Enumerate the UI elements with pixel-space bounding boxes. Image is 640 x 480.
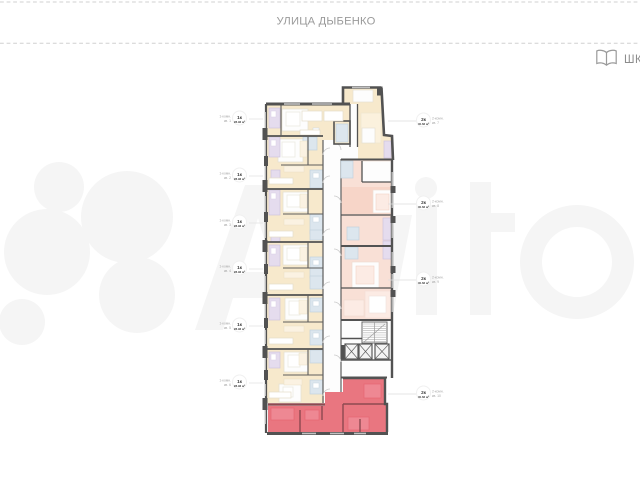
svg-text:28.93 м²: 28.93 м²: [234, 270, 245, 274]
svg-text:2к: 2к: [421, 200, 427, 205]
svg-text:УЛИЦА ДЫБЕНКО: УЛИЦА ДЫБЕНКО: [276, 16, 375, 28]
svg-text:1к: 1к: [237, 379, 243, 384]
svg-text:кв. 2: кв. 2: [224, 176, 231, 180]
svg-text:28.93 м²: 28.93 м²: [234, 384, 245, 388]
svg-text:1к: 1к: [237, 265, 243, 270]
svg-text:кв. 7: кв. 7: [432, 121, 439, 125]
svg-text:1к: 1к: [237, 322, 243, 327]
svg-text:1к: 1к: [237, 115, 243, 120]
svg-text:28.93 м²: 28.93 м²: [234, 327, 245, 331]
svg-text:кв. 8: кв. 8: [432, 204, 439, 208]
svg-text:кв. 9: кв. 9: [432, 280, 439, 284]
svg-text:1к: 1к: [237, 219, 243, 224]
svg-text:28.93 м²: 28.93 м²: [234, 120, 245, 124]
svg-text:40.62 м²: 40.62 м²: [418, 122, 429, 126]
svg-text:40.62 м²: 40.62 м²: [418, 281, 429, 285]
svg-text:кв. 1: кв. 1: [224, 119, 231, 123]
svg-text:кв. 4: кв. 4: [224, 269, 231, 273]
svg-text:28.93 м²: 28.93 м²: [234, 224, 245, 228]
svg-text:40.62 м²: 40.62 м²: [418, 395, 429, 399]
svg-text:2к: 2к: [421, 276, 427, 281]
svg-text:28.93 м²: 28.93 м²: [234, 177, 245, 181]
svg-text:ШК: ШК: [624, 54, 640, 66]
svg-text:40.62 м²: 40.62 м²: [418, 205, 429, 209]
svg-text:кв. 6: кв. 6: [224, 383, 231, 387]
svg-text:2к: 2к: [421, 390, 427, 395]
svg-text:кв. 3: кв. 3: [224, 223, 231, 227]
svg-text:кв. 5: кв. 5: [224, 326, 231, 330]
svg-text:1к: 1к: [237, 172, 243, 177]
svg-text:2к: 2к: [421, 117, 427, 122]
svg-text:кв. 10: кв. 10: [432, 394, 441, 398]
